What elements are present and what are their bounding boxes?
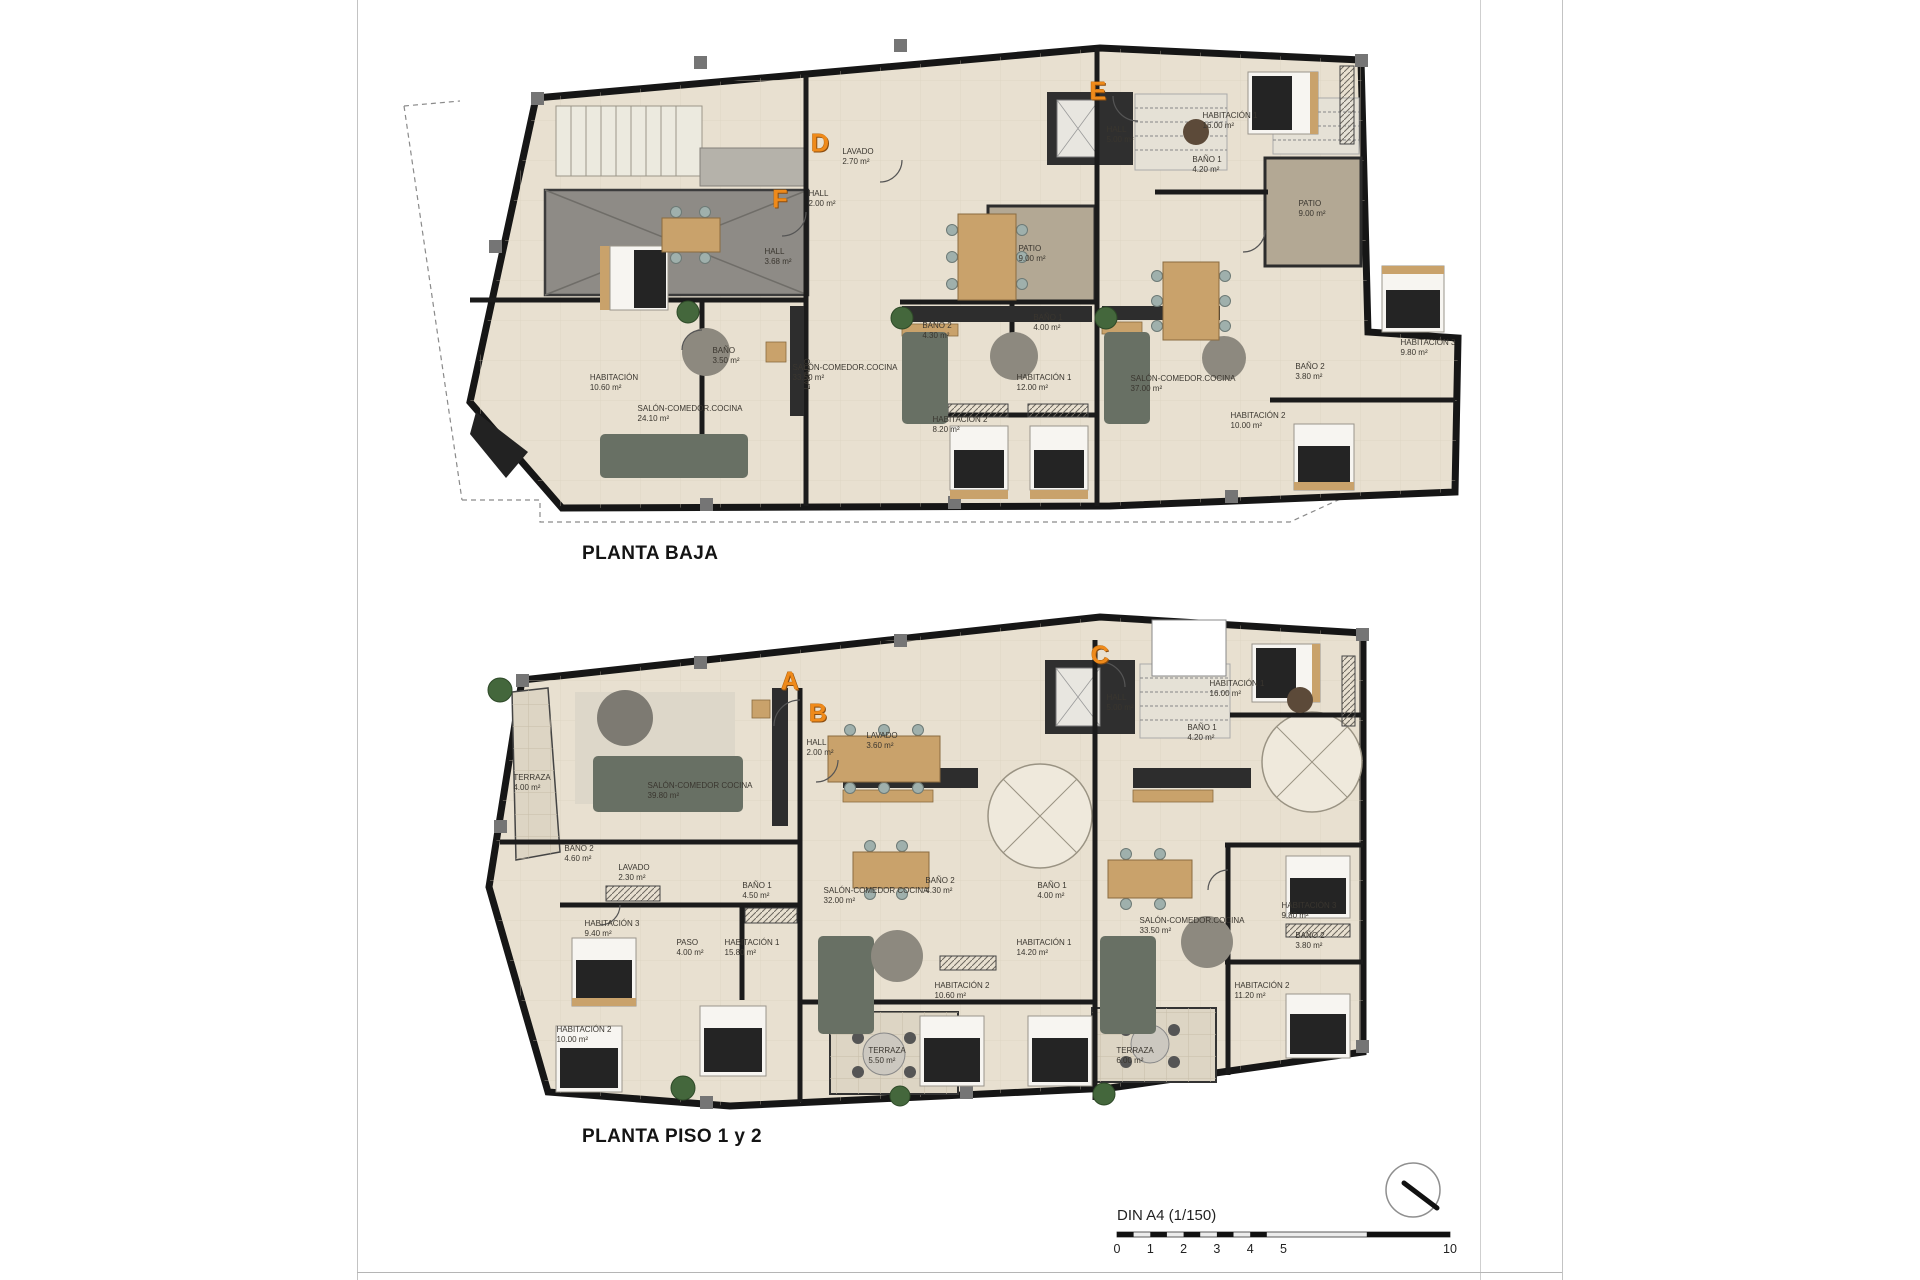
armchair-icon xyxy=(1183,119,1209,145)
architectural-plan-sheet: PLANTA BAJA PLANTA PISO 1 y 2 DIN A4 (1/… xyxy=(0,0,1920,1280)
plan-title-planta-piso: PLANTA PISO 1 y 2 xyxy=(582,1126,762,1148)
scale-tick: 3 xyxy=(1213,1242,1220,1256)
apartment-marker-b: B xyxy=(809,700,827,729)
plan-title-planta-baja: PLANTA BAJA xyxy=(582,543,718,565)
scale-bar xyxy=(1117,1232,1450,1237)
apartment-marker-c: C xyxy=(1091,642,1109,671)
floorplan-graphic xyxy=(0,0,1920,1280)
planta-piso-drawing xyxy=(488,617,1369,1109)
scale-tick: 4 xyxy=(1247,1242,1254,1256)
scale-tick: 5 xyxy=(1280,1242,1287,1256)
scale-tick: 0 xyxy=(1114,1242,1121,1256)
scale-format-label: DIN A4 (1/150) xyxy=(1117,1207,1216,1224)
scale-tick: 2 xyxy=(1180,1242,1187,1256)
scale-tick: 10 xyxy=(1443,1242,1457,1256)
patio-area xyxy=(1265,158,1361,266)
planta-baja-drawing xyxy=(404,39,1458,522)
apartment-marker-d: D xyxy=(811,130,829,159)
apartment-marker-e: E xyxy=(1090,78,1107,107)
armchair-icon xyxy=(1287,687,1313,713)
rug-icon xyxy=(597,690,653,746)
apartment-marker-a: A xyxy=(781,668,799,697)
apartment-marker-f: F xyxy=(772,186,787,215)
north-indicator-icon xyxy=(1386,1163,1440,1217)
scale-tick: 1 xyxy=(1147,1242,1154,1256)
